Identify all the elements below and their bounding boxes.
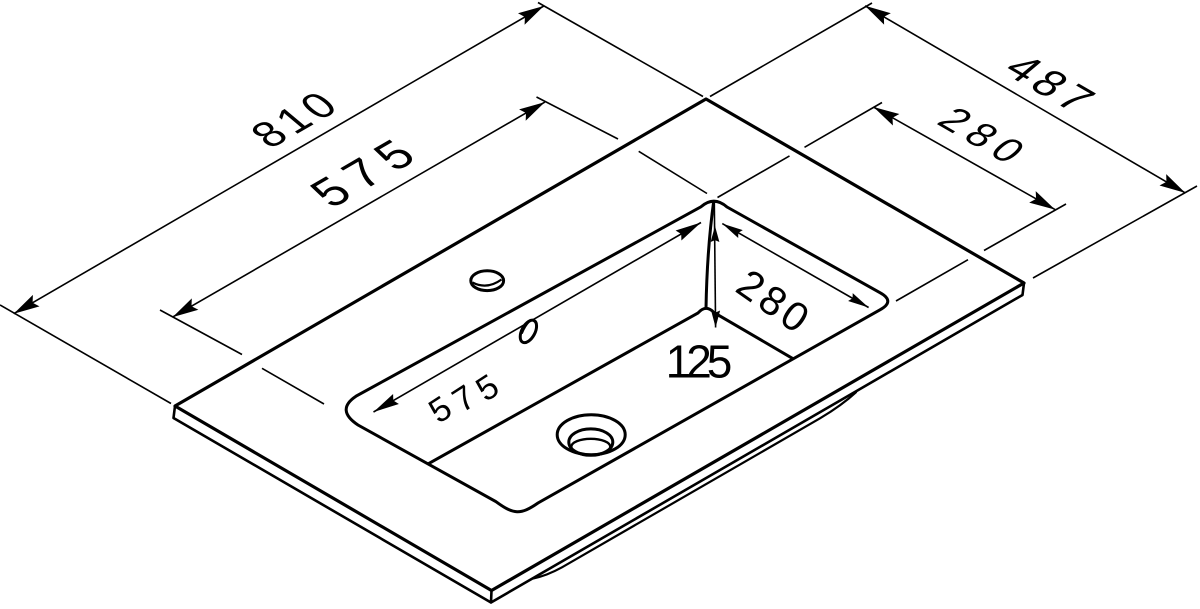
svg-text:125: 125 (666, 336, 731, 388)
